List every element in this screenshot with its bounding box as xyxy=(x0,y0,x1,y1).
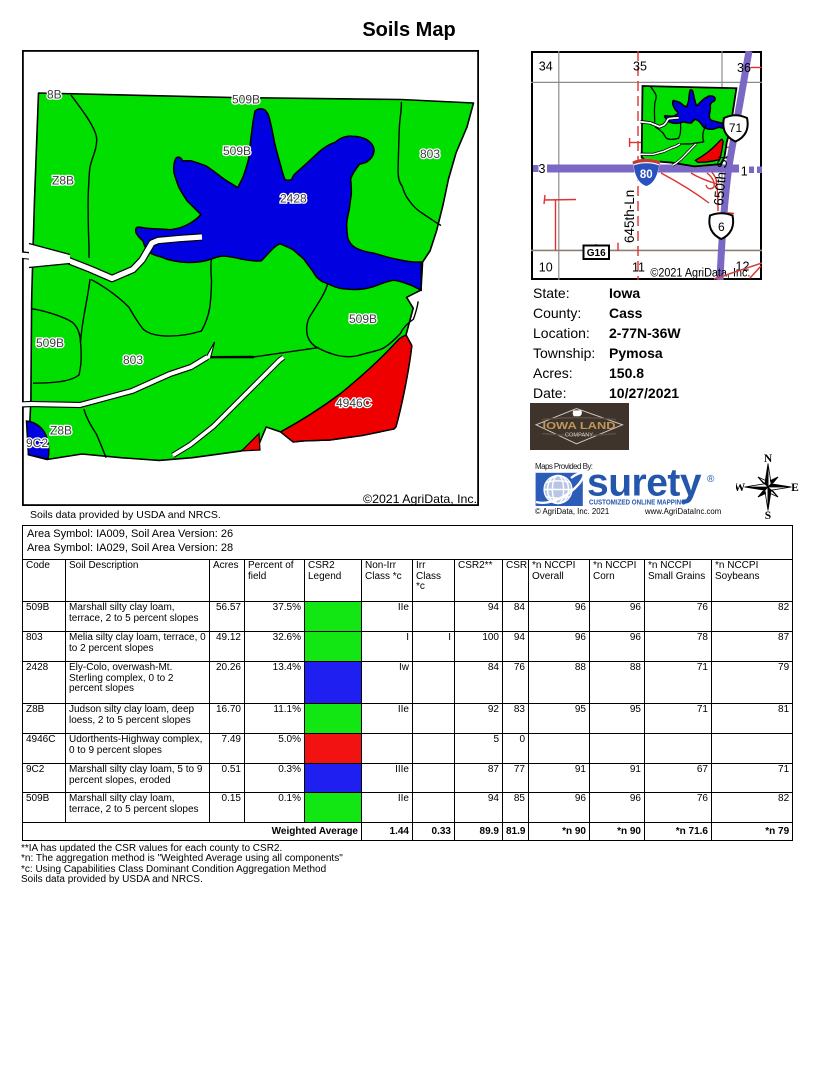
svg-text:11: 11 xyxy=(632,261,645,275)
svg-text:4946C: 4946C xyxy=(336,396,372,410)
svg-text:80: 80 xyxy=(640,169,653,181)
svg-text:E: E xyxy=(791,482,799,494)
svg-text:803: 803 xyxy=(420,147,440,161)
svg-text:S: S xyxy=(765,510,771,522)
svg-text:71: 71 xyxy=(729,121,743,135)
svg-text:©2021 AgriData, Inc.: ©2021 AgriData, Inc. xyxy=(363,492,477,506)
svg-text:6: 6 xyxy=(718,220,725,234)
svg-text:©2021 AgriData, Inc.: ©2021 AgriData, Inc. xyxy=(650,268,750,280)
svg-text:2428: 2428 xyxy=(280,192,307,206)
svg-text:COMPANY: COMPANY xyxy=(565,432,594,438)
svg-text:8B: 8B xyxy=(47,88,62,102)
svg-text:© AgriData, Inc. 2021: © AgriData, Inc. 2021 xyxy=(535,507,609,516)
svg-text:509B: 509B xyxy=(36,336,64,350)
svg-text:10: 10 xyxy=(539,261,553,275)
svg-text:3: 3 xyxy=(539,162,546,176)
svg-text:509B: 509B xyxy=(223,144,251,158)
svg-text:W: W xyxy=(736,482,746,494)
svg-text:Z8B: Z8B xyxy=(50,424,72,438)
svg-text:Maps Provided By:: Maps Provided By: xyxy=(535,462,593,471)
svg-text:N: N xyxy=(764,453,773,465)
svg-text:35: 35 xyxy=(633,60,647,74)
svg-text:803: 803 xyxy=(123,353,143,367)
svg-text:645th-Ln: 645th-Ln xyxy=(622,190,637,243)
svg-text:509B: 509B xyxy=(349,312,377,326)
svg-text:34: 34 xyxy=(539,60,553,74)
svg-text:IOWA LAND: IOWA LAND xyxy=(543,421,616,432)
svg-text:www.AgriDataInc.com: www.AgriDataInc.com xyxy=(644,507,721,516)
svg-text:1: 1 xyxy=(741,165,748,179)
svg-text:9C2: 9C2 xyxy=(26,436,48,450)
svg-text:36: 36 xyxy=(737,61,751,75)
svg-text:G16: G16 xyxy=(587,248,606,259)
svg-text:509B: 509B xyxy=(232,93,260,107)
svg-text:Z8B: Z8B xyxy=(52,174,74,188)
svg-text:CUSTOMIZED ONLINE MAPPING: CUSTOMIZED ONLINE MAPPING xyxy=(589,498,686,507)
svg-text:®: ® xyxy=(707,474,715,485)
